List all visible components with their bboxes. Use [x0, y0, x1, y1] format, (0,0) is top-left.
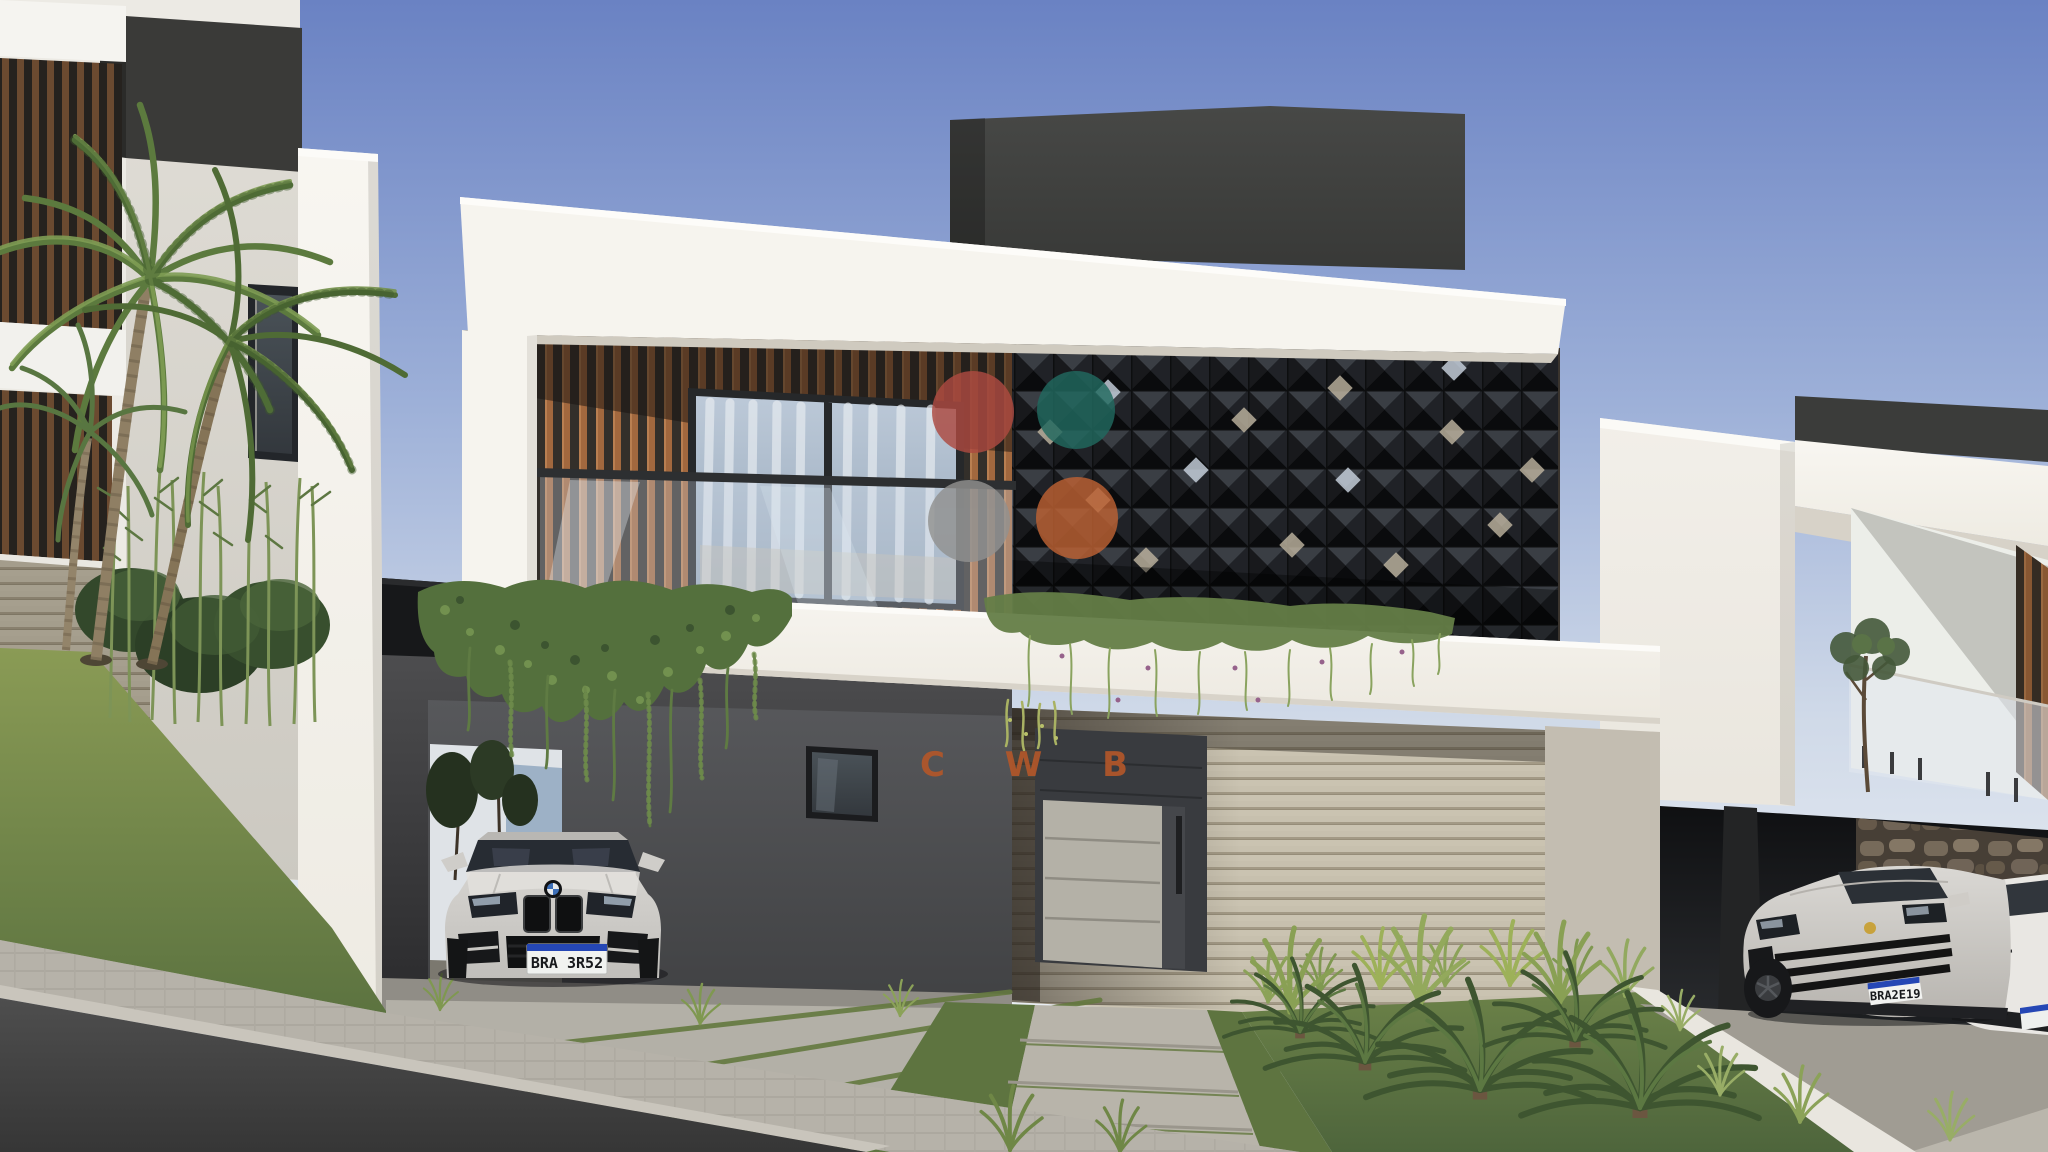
- porsche-crest: [1864, 922, 1876, 934]
- bmw-car: BRA 3R52: [438, 832, 668, 987]
- bmw-plate-text: BRA 3R52: [531, 954, 603, 972]
- left-house-slat-wall: [0, 58, 122, 330]
- carport-window: [806, 746, 878, 822]
- watermark-logo-text: C W B: [920, 745, 1152, 785]
- porsche-windshield: [1838, 868, 1948, 904]
- door-handle: [1176, 816, 1182, 894]
- bmw-wheel-left: [447, 938, 468, 978]
- bmw-kidney-grille-right: [556, 896, 582, 932]
- bmw-roundel: [544, 880, 562, 898]
- porsche-plate-text: BRA2E19: [1870, 987, 1921, 1004]
- bmw-kidney-grille-left: [524, 896, 550, 932]
- scene-root: BRA 3R52 BRA2E19 C W B: [0, 0, 2048, 1152]
- right-return-wall: [1545, 726, 1660, 1015]
- logo-orange-circle: [1036, 477, 1118, 559]
- rooftop-box: [950, 106, 1465, 270]
- bmw-license-plate: BRA 3R52: [527, 944, 607, 974]
- logo-red-circle: [932, 371, 1014, 453]
- logo-teal-circle: [1037, 371, 1115, 449]
- bmw-wheel-right: [638, 938, 659, 978]
- vw-license-plate: [2020, 1004, 2048, 1030]
- architectural-render: BRA 3R52 BRA2E19 C W B: [0, 0, 2048, 1152]
- entry-door-panel: [1043, 800, 1162, 968]
- logo-gray-circle: [928, 480, 1010, 562]
